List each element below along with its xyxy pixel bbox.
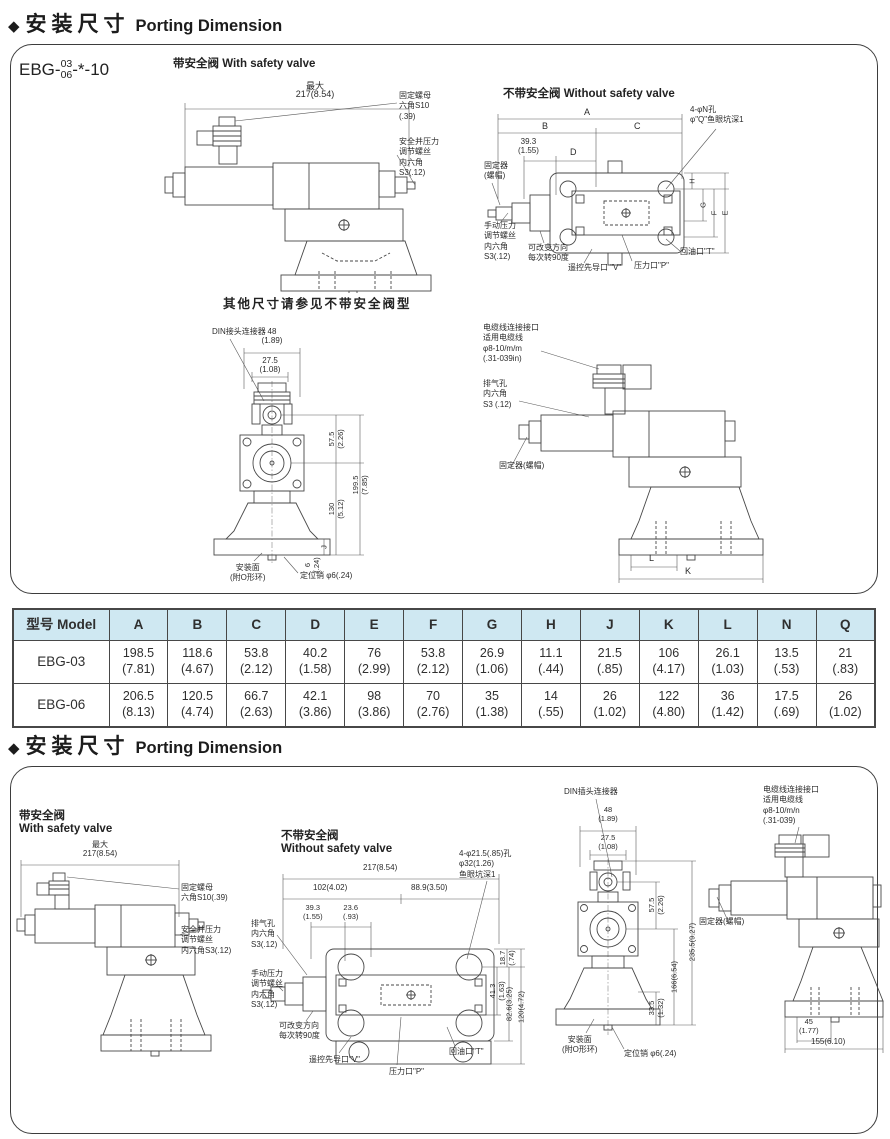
- dim-120: 120(4.72): [517, 991, 526, 1023]
- cell: 76 (2.99): [345, 641, 404, 684]
- drawing-top-view-without-safety: A B C 39.3 (1.55) D H G F E 4-φN孔 φ"Q"鱼眼…: [484, 103, 784, 278]
- dim-45: 45 (1.77): [799, 1017, 819, 1035]
- col-header-C: C: [227, 609, 286, 641]
- dimension-table: 型号 Model A B C D E F G H J K L N Q EBG-0…: [12, 608, 876, 728]
- panel-2: 带安全阀 With safety valve 不带安全阀 Without saf…: [10, 766, 878, 1134]
- dim-57-5-2: 57.5 (2.26): [647, 895, 665, 915]
- col-header-N: N: [757, 609, 816, 641]
- dim-199-5: 199.5 (7.85): [351, 475, 369, 495]
- dim-155: 155(6.10): [811, 1037, 845, 1046]
- dim-235-5: 235.5(9.27): [688, 923, 697, 961]
- cell: 70 (2.76): [404, 684, 463, 728]
- col-header-E: E: [345, 609, 404, 641]
- pressure-port-label: 压力口"P": [634, 261, 669, 271]
- fixing-nut-label-2: 固定螺母 六角S10(.39): [181, 883, 228, 904]
- col-header-J: J: [580, 609, 639, 641]
- dim-A: A: [584, 107, 590, 117]
- dim-166: 166(6.54): [670, 961, 679, 993]
- section-title-en: Porting Dimension: [136, 739, 283, 758]
- fixing-nut-label: 固定螺母 六角S10 (.39): [399, 91, 431, 122]
- model-cell: EBG-06: [13, 684, 109, 728]
- return-port-label-2: 回油口"T": [449, 1047, 484, 1057]
- valve-top-view-art-2: [251, 849, 536, 1099]
- diamond-icon: ◆: [8, 17, 20, 35]
- cell: 106 (4.17): [639, 641, 698, 684]
- vent-hole-label: 排气孔 内六角 S3 (.12): [483, 379, 511, 410]
- dim-B: B: [542, 121, 548, 131]
- dim-J: J: [320, 545, 329, 549]
- col-header-H: H: [521, 609, 580, 641]
- cell: 66.7 (2.63): [227, 684, 286, 728]
- cell: 21 (.83): [816, 641, 875, 684]
- dim-27-5-2: 27.5 (1.08): [588, 833, 628, 851]
- valve-side-view-cable-art-2: [699, 785, 887, 1085]
- dim-33-5: 33.5 (1.32): [647, 998, 665, 1018]
- dim-217-2: 217(8.54): [363, 863, 397, 872]
- col-header-F: F: [404, 609, 463, 641]
- table-header-row: 型号 Model A B C D E F G H J K L N Q: [13, 609, 875, 641]
- cell: 26.9 (1.06): [463, 641, 522, 684]
- cell: 35 (1.38): [463, 684, 522, 728]
- cell: 98 (3.86): [345, 684, 404, 728]
- diamond-icon: ◆: [8, 739, 20, 757]
- cell: 26 (1.02): [816, 684, 875, 728]
- section-header-2: ◆ 安装尺寸 Porting Dimension: [8, 730, 282, 760]
- dim-48: 48 (1.89): [252, 327, 292, 345]
- cable-connector-label: 电缆线连接接口 适用电缆线 φ8-10/m/m (.31-039in): [483, 323, 539, 365]
- col-header-K: K: [639, 609, 698, 641]
- cell: 11.1 (.44): [521, 641, 580, 684]
- dim-217-label-2: 217(8.54): [73, 849, 127, 858]
- dim-H: H: [688, 178, 697, 183]
- cable-connector-label-2: 电缆线连接接口 适用电缆线 φ8-10/m/n (.31-039): [763, 785, 819, 827]
- dim-57-5: 57.5 (2.26): [327, 429, 345, 449]
- dim-18-7: 18.7 (.74): [498, 950, 516, 965]
- catalog-page: ◆ 安装尺寸 Porting Dimension EBG- 03 06 -*-1…: [0, 0, 890, 1139]
- drawing-top-view-without-safety-2: 217(8.54) 102(4.02) 88.9(3.50) 39.3 (1.5…: [251, 849, 536, 1099]
- col-header-G: G: [463, 609, 522, 641]
- counterbore-holes-label: 4-φ21.5(.85)孔 φ32(1.26) 鱼眼坑深1: [459, 849, 511, 880]
- col-header-D: D: [286, 609, 345, 641]
- din-plug-connector-label: DIN插头连接器: [564, 787, 618, 797]
- drawing2-title: 不带安全阀 Without safety valve: [503, 85, 675, 101]
- cell: 40.2 (1.58): [286, 641, 345, 684]
- dim-E: E: [721, 210, 730, 215]
- model-size-stack: 03 06: [61, 59, 73, 81]
- dim-130: 130 (5.12): [327, 499, 345, 519]
- fixer-nut-label: 固定器(螺帽): [499, 461, 544, 471]
- drawing-side-view-with-safety-2: 最大 217(8.54) 固定螺母 六角S10(.39) 安全并压力 调节螺丝 …: [13, 839, 248, 1089]
- col-header-Q: Q: [816, 609, 875, 641]
- valve-side-view-art-2: [13, 839, 248, 1089]
- rotatable-label-2: 可改变方向 每次转90度: [279, 1021, 320, 1042]
- dim-39-3-2: 39.3 (1.55): [303, 903, 323, 921]
- dim-K: K: [685, 566, 691, 576]
- cell: 118.6 (4.67): [168, 641, 227, 684]
- pilot-port-label: 遥控先导口 "V": [568, 263, 621, 273]
- manual-pressure-adjust-label-2: 手动压力 调节螺丝 内六角 S3(.12): [251, 969, 283, 1011]
- cell: 53.8 (2.12): [404, 641, 463, 684]
- model-suffix: -*-10: [72, 60, 109, 80]
- dim-217-label: 217(8.54): [275, 89, 355, 99]
- cell: 120.5 (4.74): [168, 684, 227, 728]
- drawing1-caption: 其他尺寸请参见不带安全阀型: [223, 293, 412, 312]
- dim-F: F: [710, 211, 719, 216]
- col-header-model: 型号 Model: [13, 609, 109, 641]
- section-title-zh: 安装尺寸: [26, 730, 130, 760]
- pilot-port-label-2: 遥控先导口"V": [309, 1055, 360, 1065]
- dim-D: D: [570, 147, 577, 157]
- model-code: EBG- 03 06 -*-10: [19, 59, 109, 81]
- locating-pin-label: 定位销 φ6(.24): [300, 571, 352, 581]
- with-safety-title: 带安全阀 With safety valve: [19, 807, 112, 835]
- dim-G: G: [699, 202, 708, 208]
- drawing-side-view-with-safety: 最大 217(8.54) 固定螺母 六角S10 (.39) 安全并压力 调节螺丝…: [157, 81, 467, 293]
- locating-pin-label-2: 定位销 φ6(.24): [624, 1049, 676, 1059]
- cell: 17.5 (.69): [757, 684, 816, 728]
- dim-102: 102(4.02): [313, 883, 347, 892]
- section-title-zh: 安装尺寸: [26, 8, 130, 38]
- model-size-bottom: 06: [61, 70, 73, 81]
- mounting-face-label: 安装面 (附O形环): [230, 563, 266, 584]
- dim-41-3: 41.3 (1.63): [488, 981, 506, 1001]
- col-header-B: B: [168, 609, 227, 641]
- mounting-face-label-2: 安装面 (附O形环): [562, 1035, 598, 1056]
- cell: 21.5 (.85): [580, 641, 639, 684]
- vent-hole-label-2: 排气孔 内六角 S3(.12): [251, 919, 277, 950]
- cell: 26.1 (1.03): [698, 641, 757, 684]
- dim-48-2: 48 (1.89): [590, 805, 626, 823]
- cell: 122 (4.80): [639, 684, 698, 728]
- safety-pressure-adjust-label: 安全并压力 调节螺丝 内六角 S3(.12): [399, 137, 439, 179]
- mounting-holes-label: 4-φN孔 φ"Q"鱼眼坑深1: [690, 105, 744, 126]
- col-header-A: A: [109, 609, 168, 641]
- cell: 42.1 (3.86): [286, 684, 345, 728]
- safety-pressure-adjust-label-2: 安全并压力 调节螺丝 内六角S3(.12): [181, 925, 231, 956]
- table-row-ebg06: EBG-06 206.5 (8.13) 120.5 (4.74) 66.7 (2…: [13, 684, 875, 728]
- valve-front-view-art: [184, 325, 434, 587]
- drawing-front-view: DIN接头连接器 48 (1.89) 27.5 (1.08) 57.5 (2.2…: [184, 325, 434, 587]
- cell: 26 (1.02): [580, 684, 639, 728]
- cell: 14 (.55): [521, 684, 580, 728]
- cell: 13.5 (.53): [757, 641, 816, 684]
- section-header-1: ◆ 安装尺寸 Porting Dimension: [8, 8, 282, 38]
- col-header-L: L: [698, 609, 757, 641]
- cell: 206.5 (8.13): [109, 684, 168, 728]
- fixer-nut-label-3: 固定器(螺帽): [699, 917, 744, 927]
- pressure-port-label-2: 压力口"P": [389, 1067, 424, 1077]
- dim-L: L: [649, 553, 654, 563]
- cell: 53.8 (2.12): [227, 641, 286, 684]
- drawing1-title: 带安全阀 With safety valve: [173, 55, 315, 71]
- model-prefix: EBG-: [19, 60, 61, 80]
- rotatable-label: 可改变方向 每次转90度: [528, 243, 569, 264]
- drawing-front-view-2: DIN插头连接器 48 (1.89) 27.5 (1.08) 57.5 (2.2…: [534, 787, 706, 1089]
- dim-23-6: 23.6 (.93): [343, 903, 358, 921]
- drawing-side-view-cable: 电缆线连接接口 适用电缆线 φ8-10/m/m (.31-039in) 排气孔 …: [471, 321, 771, 589]
- dim-C: C: [634, 121, 641, 131]
- return-port-label: 回油口"T": [680, 247, 715, 257]
- dim-39-3: 39.3 (1.55): [518, 137, 539, 155]
- cell: 36 (1.42): [698, 684, 757, 728]
- drawing-side-view-cable-2: 电缆线连接接口 适用电缆线 φ8-10/m/n (.31-039) 固定器(螺帽…: [699, 785, 887, 1085]
- section-title-en: Porting Dimension: [136, 17, 283, 36]
- manual-pressure-adjust-label: 手动压力 调节螺丝 内六角 S3(.12): [484, 221, 516, 263]
- table-row-ebg03: EBG-03 198.5 (7.81) 118.6 (4.67) 53.8 (2…: [13, 641, 875, 684]
- cell: 198.5 (7.81): [109, 641, 168, 684]
- dim-27-5: 27.5 (1.08): [250, 356, 290, 374]
- model-cell: EBG-03: [13, 641, 109, 684]
- dim-82-6: 82.6(3.25): [505, 987, 514, 1021]
- panel-1: EBG- 03 06 -*-10 带安全阀 With safety valve: [10, 44, 878, 594]
- fixer-label: 固定器 (螺帽): [484, 161, 508, 182]
- dim-88-9: 88.9(3.50): [411, 883, 447, 892]
